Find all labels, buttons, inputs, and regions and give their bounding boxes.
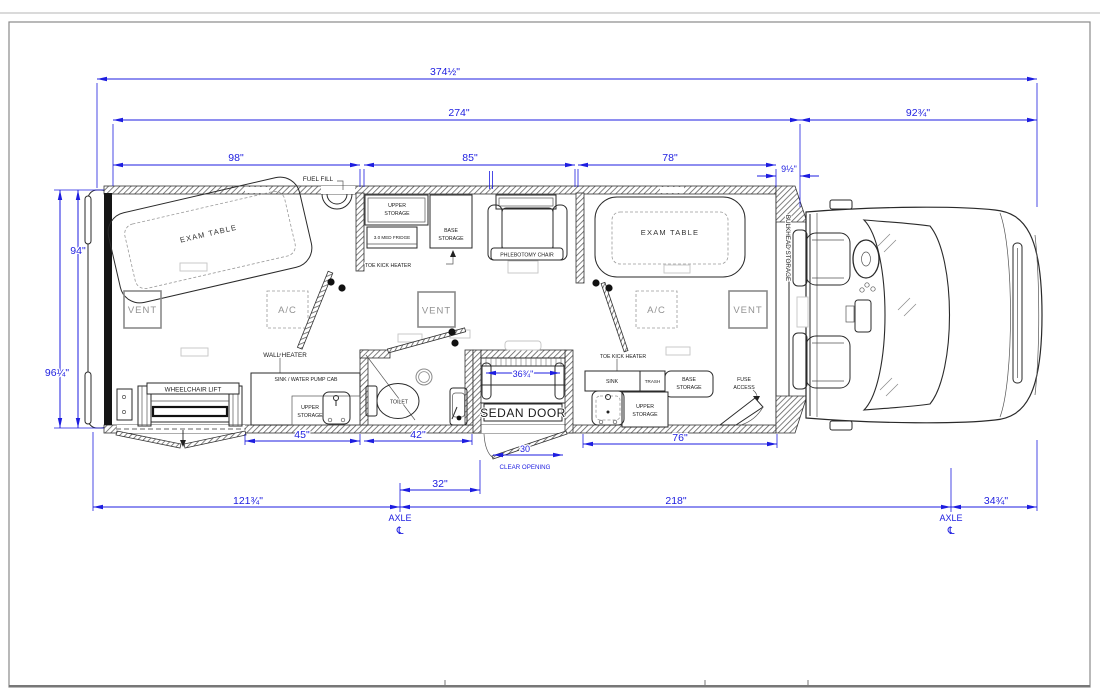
wall-top-window-gap (245, 187, 269, 193)
bath-wall-top (360, 350, 390, 358)
med-fridge-label: 3.0 MED FRIDGE (374, 235, 411, 240)
bath-wall-right (465, 350, 473, 425)
entry-wall-left (473, 350, 481, 433)
trash-label: TRASH (645, 379, 661, 384)
door-hinge-knob (592, 279, 599, 286)
door-hinge-knob (448, 328, 455, 335)
wall-partition-front (576, 193, 584, 283)
dim-218-text: 218" (665, 495, 687, 507)
storage-label: STORAGE (384, 211, 410, 217)
front-base-storage (665, 371, 713, 397)
fuel-fill-label: FUEL FILL (303, 176, 334, 183)
storage-label: STORAGE (438, 236, 464, 242)
base-label: BASE (682, 377, 696, 383)
ceiling-light (664, 265, 690, 273)
door-hinge-knob (338, 284, 345, 291)
vent-label: VENT (128, 305, 157, 316)
ceiling-light (181, 348, 208, 356)
entry-skylight (505, 341, 541, 350)
clear-opening-label: CLEAR OPENING (500, 464, 551, 471)
wall-top-window-gap (660, 187, 684, 193)
centerline-symbol: ℄ (947, 525, 955, 537)
vent-label: VENT (733, 305, 762, 316)
rear-sink-cabinet: SINK / WATER PUMP CAB UPPER STORAGE (251, 373, 360, 425)
access-label: ACCESS (733, 385, 755, 391)
dim-96quarter-text: 96¼" (45, 367, 69, 379)
sink-water-pump-label: SINK / WATER PUMP CAB (274, 377, 338, 383)
center-console-rear (797, 297, 808, 327)
bath-sink-drain (457, 416, 462, 421)
dim-78-text: 78" (662, 152, 678, 164)
wheelchair-lift-label: WHEELCHAIR LIFT (165, 387, 222, 394)
chair-footrest (508, 261, 538, 273)
dim-9half-text: 9½" (781, 164, 797, 174)
centerline-symbol: ℄ (396, 525, 404, 537)
sedan-door-label: SEDAN DOOR (480, 406, 566, 420)
storage-label: STORAGE (632, 412, 658, 418)
toe-kick-heater-label: TOE KICK HEATER (365, 263, 411, 269)
vent-label: VENT (422, 306, 451, 317)
ac-label: A/C (647, 305, 666, 316)
dim-274-text: 274" (448, 107, 470, 119)
lift-ramp-bar (153, 407, 227, 416)
dim-45-text: 45" (294, 429, 310, 441)
fuse-label: FUSE (737, 377, 751, 383)
upper-label: UPPER (388, 203, 406, 209)
dim-85-text: 85" (462, 152, 478, 164)
cab (793, 200, 1042, 430)
dim-121-text: 121¾" (233, 495, 263, 507)
door-hinge-knob (605, 284, 612, 291)
wall-rear (104, 193, 112, 425)
phlebotomy-chair-label: PHLEBOTOMY CHAIR (500, 253, 554, 259)
sink-label: SINK (606, 379, 619, 385)
dim-98-text: 98" (228, 152, 244, 164)
side-mirror-bottom (830, 421, 852, 430)
axle-label: AXLE (388, 513, 411, 523)
ceiling-light (180, 263, 207, 271)
door-hinge-knob (327, 278, 334, 285)
dim-76-text: 76" (672, 432, 688, 444)
wall-partition-rear (356, 193, 364, 271)
upper-storage-label2: STORAGE (297, 413, 323, 419)
entry-wall-top (481, 350, 565, 358)
entry-tread-plate (481, 358, 565, 366)
upper-storage-cabinet (365, 195, 428, 225)
dim-94-text: 94" (70, 245, 86, 257)
fuel-fill-wall-gap (321, 186, 355, 194)
dim-step-text: 36¾" (513, 369, 534, 379)
storage-label: STORAGE (676, 385, 702, 391)
wall-heater-label: WALL HEATER (263, 352, 307, 359)
axle-label: AXLE (939, 513, 962, 523)
rear-bumper-pad (85, 372, 91, 424)
base-label: BASE (444, 228, 458, 234)
ceiling-light (666, 347, 690, 355)
exam-table-label: EXAM TABLE (641, 228, 699, 237)
sedan-door-opening (481, 425, 565, 433)
bath-wall-left (360, 350, 368, 425)
dim-30-text: 30 (520, 444, 530, 454)
dim-34-text: 34¾" (984, 495, 1008, 507)
dim-overall-text: 374½" (430, 66, 460, 78)
floor-plan-svg: BULKHEAD STORAGE EXAM TABLE VENT A/C WAL… (0, 0, 1100, 690)
side-mirror-top (830, 200, 852, 209)
door-hinge-knob (451, 339, 458, 346)
toilet-label: TOILET (390, 400, 409, 406)
bulkhead-storage-label: BULKHEAD STORAGE (784, 215, 791, 281)
sink-drain (607, 411, 610, 414)
upper-label: UPPER (636, 404, 654, 410)
dim-32-text: 32" (432, 478, 448, 490)
toe-kick-heater-label: TOE KICK HEATER (600, 354, 646, 360)
dim-42-text: 42" (410, 429, 426, 441)
rear-bumper-pad (85, 196, 91, 244)
upper-storage-label: UPPER (301, 405, 319, 411)
drawing-sheet: BULKHEAD STORAGE EXAM TABLE VENT A/C WAL… (0, 0, 1100, 690)
entry-wall-right (565, 350, 573, 433)
dim-cab-text: 92¾" (906, 107, 930, 119)
ac-label: A/C (278, 305, 297, 316)
